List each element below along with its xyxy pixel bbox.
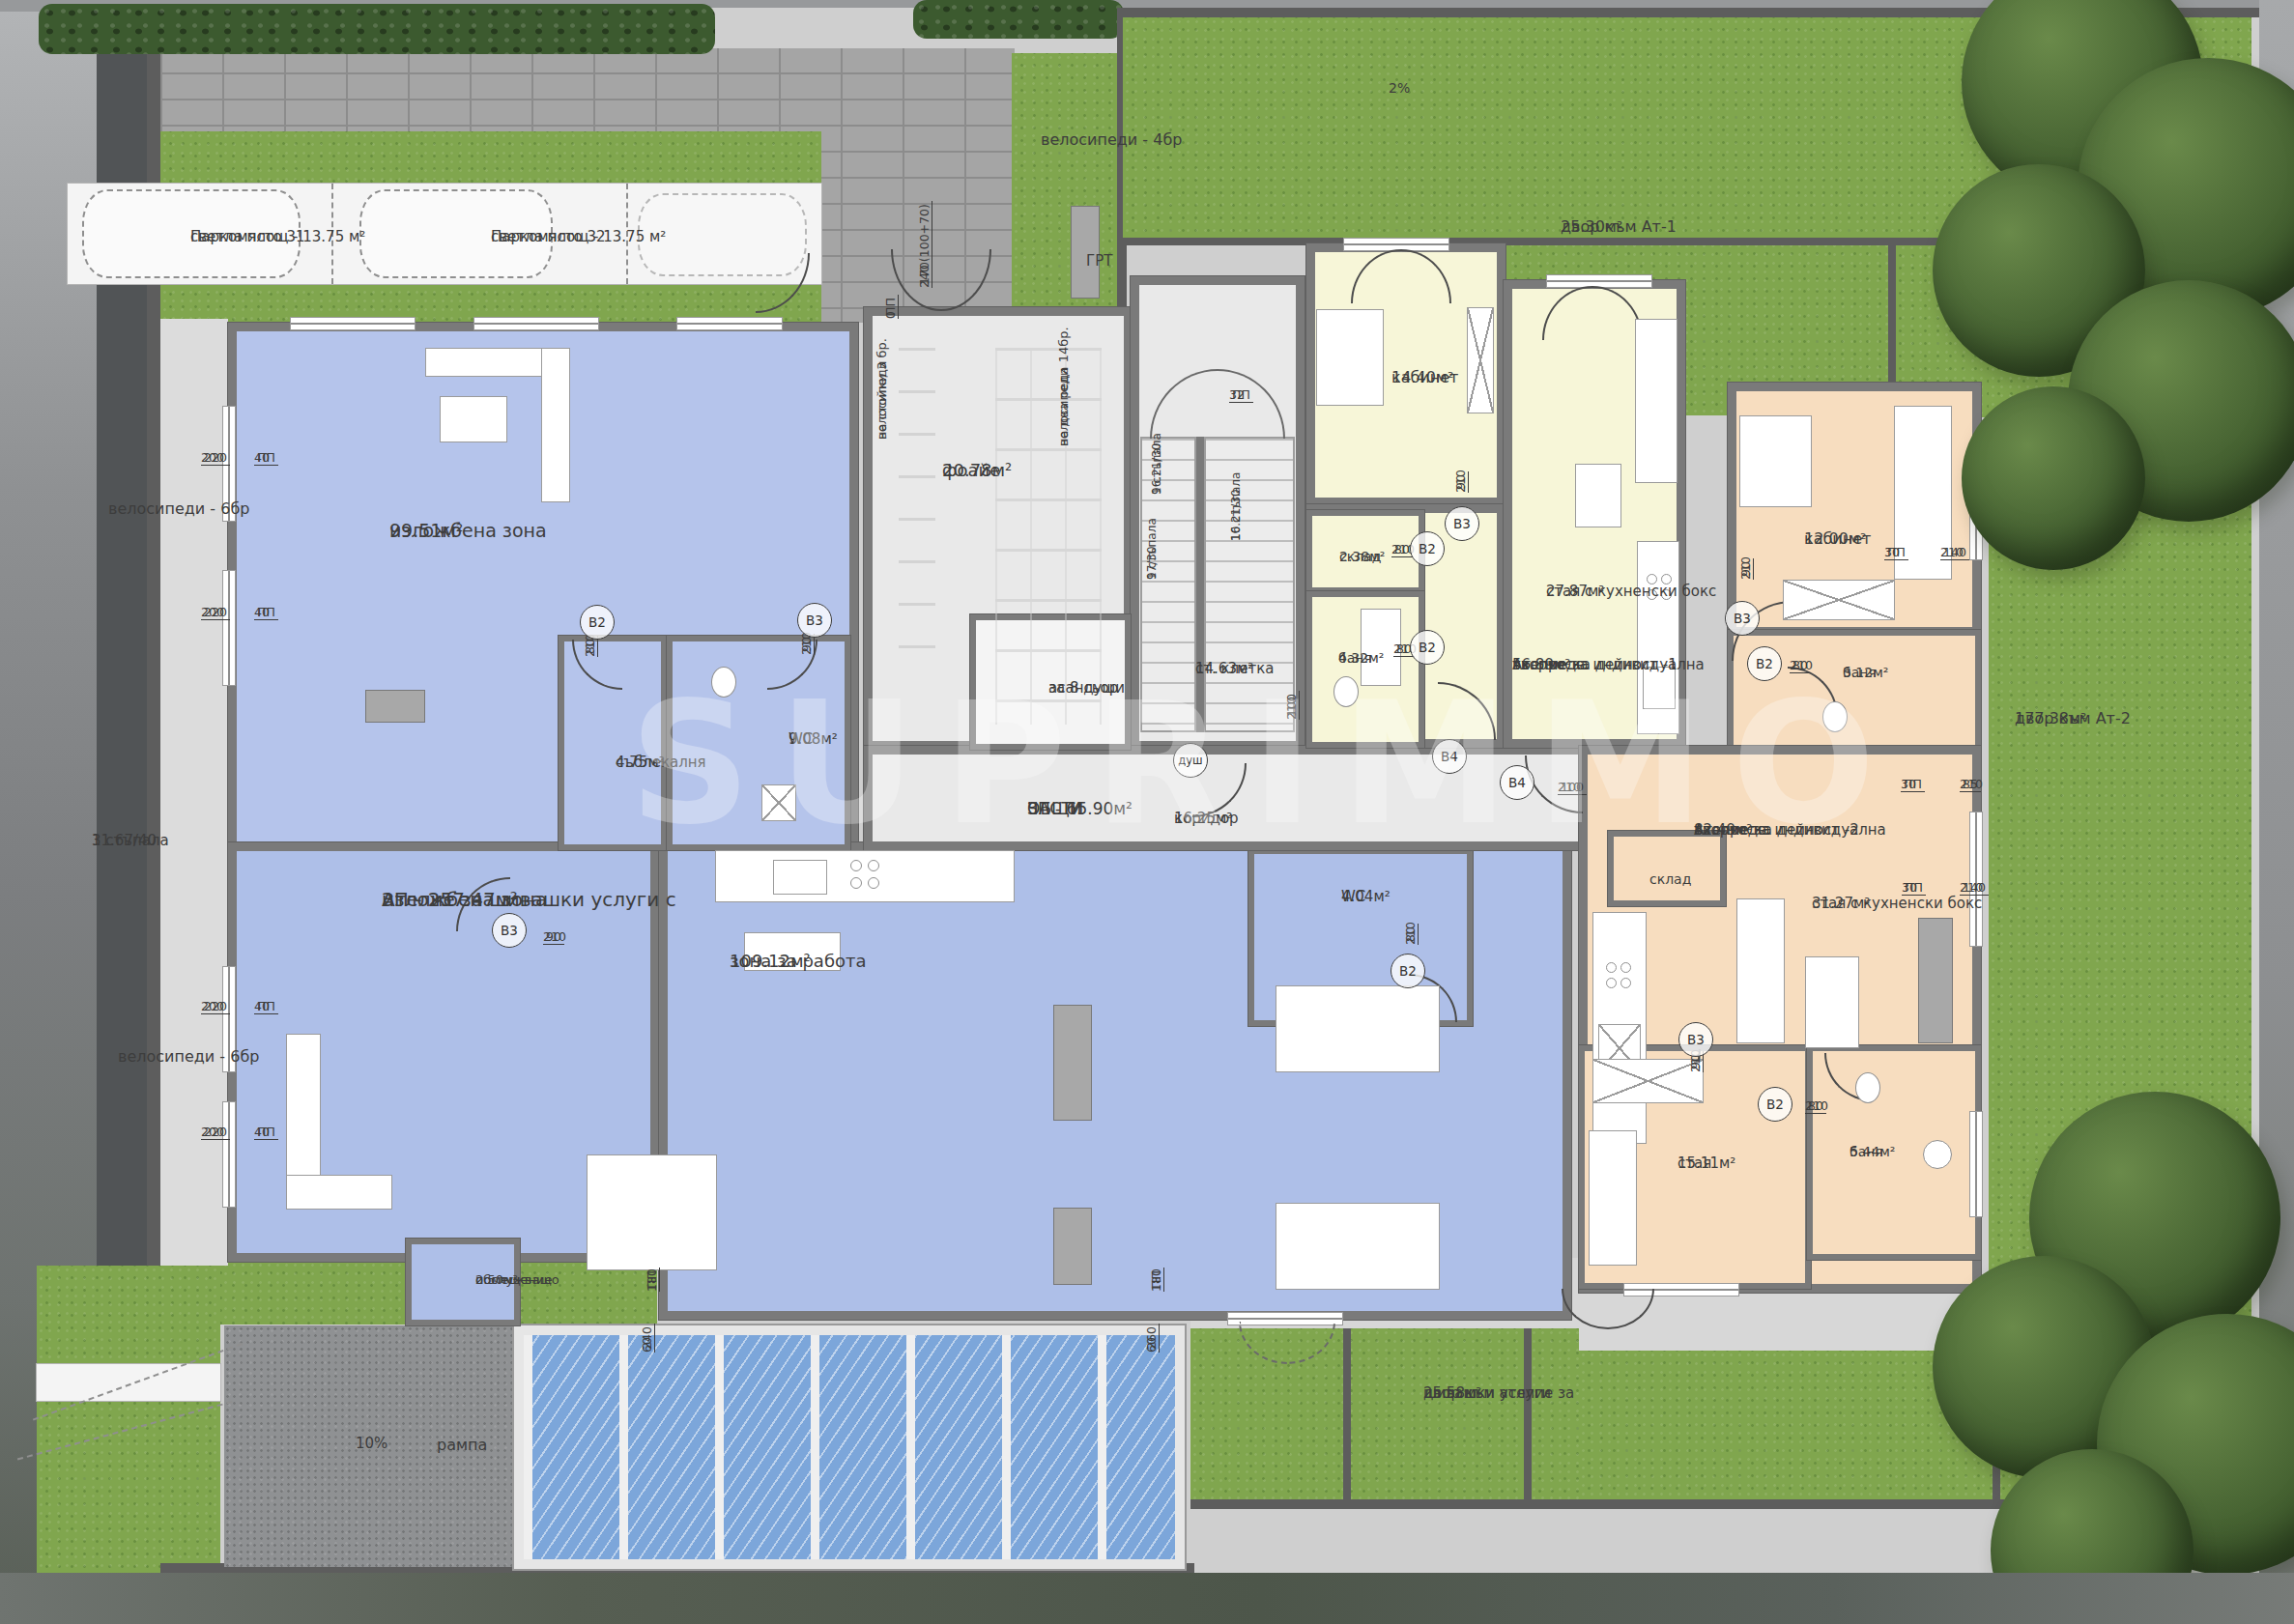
door-tag-В3: В3	[1678, 1022, 1713, 1057]
door-tag-В3: В3	[797, 603, 832, 638]
door-tag-В2: В2	[1410, 531, 1445, 566]
door-tag-В2: В2	[580, 605, 615, 640]
site-plan: SUPRIMMO Паркомясто 31светла площ - 13.7…	[0, 0, 2294, 1624]
door-tag-В2: В2	[1391, 954, 1425, 988]
watermark: SUPRIMMO	[734, 638, 1797, 889]
door-tag-В3: В3	[1725, 601, 1760, 636]
door-tag-В3: В3	[492, 913, 527, 948]
door-tag-В3: В3	[1445, 506, 1479, 541]
door-tag-В2: В2	[1758, 1087, 1792, 1122]
